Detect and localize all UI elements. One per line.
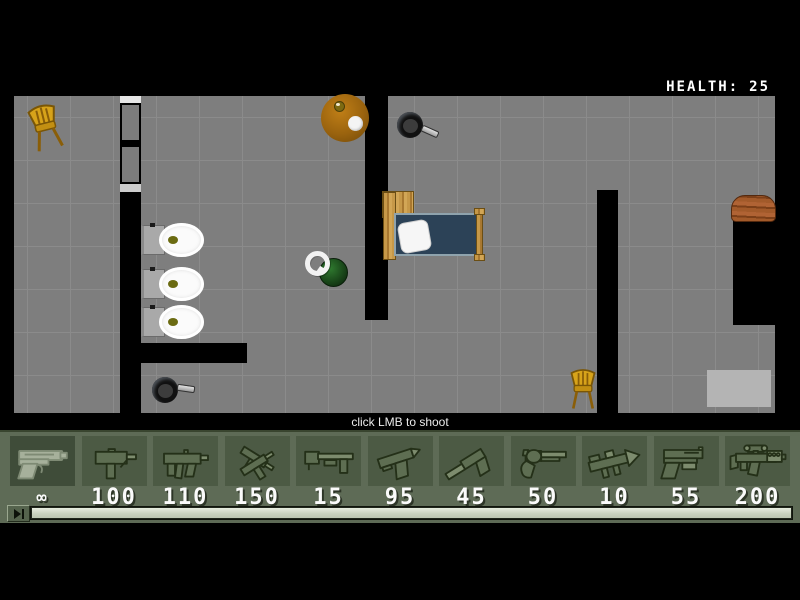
progress-fill	[32, 508, 791, 518]
weapon-slot-silenced-pistol[interactable]	[439, 436, 504, 486]
cup-icon	[334, 101, 345, 112]
weapon-slot-rocket-launcher[interactable]	[582, 436, 647, 486]
toilet-flush	[150, 223, 155, 227]
mac10-icon	[84, 439, 144, 483]
toilet-water	[168, 280, 178, 288]
toilet-bowl	[159, 305, 204, 339]
door-cap	[120, 184, 141, 192]
frying-pan-icon	[397, 112, 441, 142]
weapon-slot-scoped-rifle[interactable]	[725, 436, 790, 486]
bed-footboard-knob	[474, 254, 485, 261]
health-value: 25	[749, 79, 770, 95]
shotgun-icon	[299, 439, 359, 483]
wood-log-icon	[731, 195, 776, 222]
toilet-icon	[141, 305, 205, 339]
toilet-flush	[150, 267, 155, 271]
weapon-slot-shotgun[interactable]	[296, 436, 361, 486]
revolver-icon	[513, 439, 573, 483]
wooden-chair-icon	[566, 366, 600, 416]
wall-bottom-left	[141, 343, 247, 363]
bed-icon	[378, 188, 490, 264]
mp5k-icon	[156, 439, 216, 483]
plate-icon	[348, 116, 363, 131]
weapon-bar: ∞ 100 110 150 15 95 45 50 10 55 200	[0, 430, 800, 523]
pan-inner	[403, 119, 418, 133]
weapon-slot-dual-uzis[interactable]	[225, 436, 290, 486]
weapon-slot-desert-eagle[interactable]	[10, 436, 75, 486]
scoped-rifle-icon	[728, 439, 788, 483]
wall-right-block	[733, 217, 775, 325]
weapon-slot-revolver[interactable]	[511, 436, 576, 486]
player-character	[303, 249, 351, 291]
pause-bar-icon	[22, 509, 24, 519]
pan-inner	[158, 384, 173, 398]
toilet-bowl	[159, 223, 204, 257]
toilet-water	[168, 318, 178, 326]
pan-handle	[420, 125, 439, 139]
toilet-icon	[141, 267, 205, 301]
wall-left-vertical	[120, 193, 141, 413]
toilet-icon	[141, 223, 205, 257]
pan-handle	[177, 384, 196, 393]
game-stage: HEALTH:25	[0, 0, 800, 600]
weapon-slots	[10, 436, 790, 486]
toilet-bowl	[159, 267, 204, 301]
exit-pad	[707, 370, 771, 407]
frying-pan-icon	[152, 377, 196, 407]
hint-text: click LMB to shoot	[0, 415, 800, 429]
bed-footboard	[476, 211, 483, 258]
toilet-flush	[150, 305, 155, 309]
desert-eagle-icon	[13, 439, 73, 483]
tmp-icon	[370, 439, 430, 483]
tactical-pistol-icon	[656, 439, 716, 483]
wall-right-vertical	[597, 190, 618, 413]
bed-footboard-knob	[474, 208, 485, 215]
round-table-icon	[321, 94, 369, 142]
toilet-water	[168, 236, 178, 244]
white-ring-icon	[305, 251, 330, 276]
dual-uzis-icon	[227, 439, 287, 483]
door-panel	[120, 103, 141, 142]
door-cap	[120, 96, 141, 103]
silenced-pistol-icon	[442, 439, 502, 483]
weapon-slot-mac10[interactable]	[82, 436, 147, 486]
weapon-slot-tactical-pistol[interactable]	[654, 436, 719, 486]
door-panel	[120, 145, 141, 184]
progress-bar[interactable]	[30, 506, 793, 520]
weapon-slot-mp5k[interactable]	[153, 436, 218, 486]
health-label: HEALTH:	[666, 79, 739, 95]
rocket-launcher-icon	[585, 439, 645, 483]
health-display: HEALTH:25	[666, 79, 770, 95]
sliding-door	[120, 96, 141, 193]
play-icon	[14, 509, 21, 519]
weapon-slot-tmp[interactable]	[368, 436, 433, 486]
play-next-button[interactable]	[7, 505, 30, 522]
bed-pillow	[397, 219, 433, 255]
